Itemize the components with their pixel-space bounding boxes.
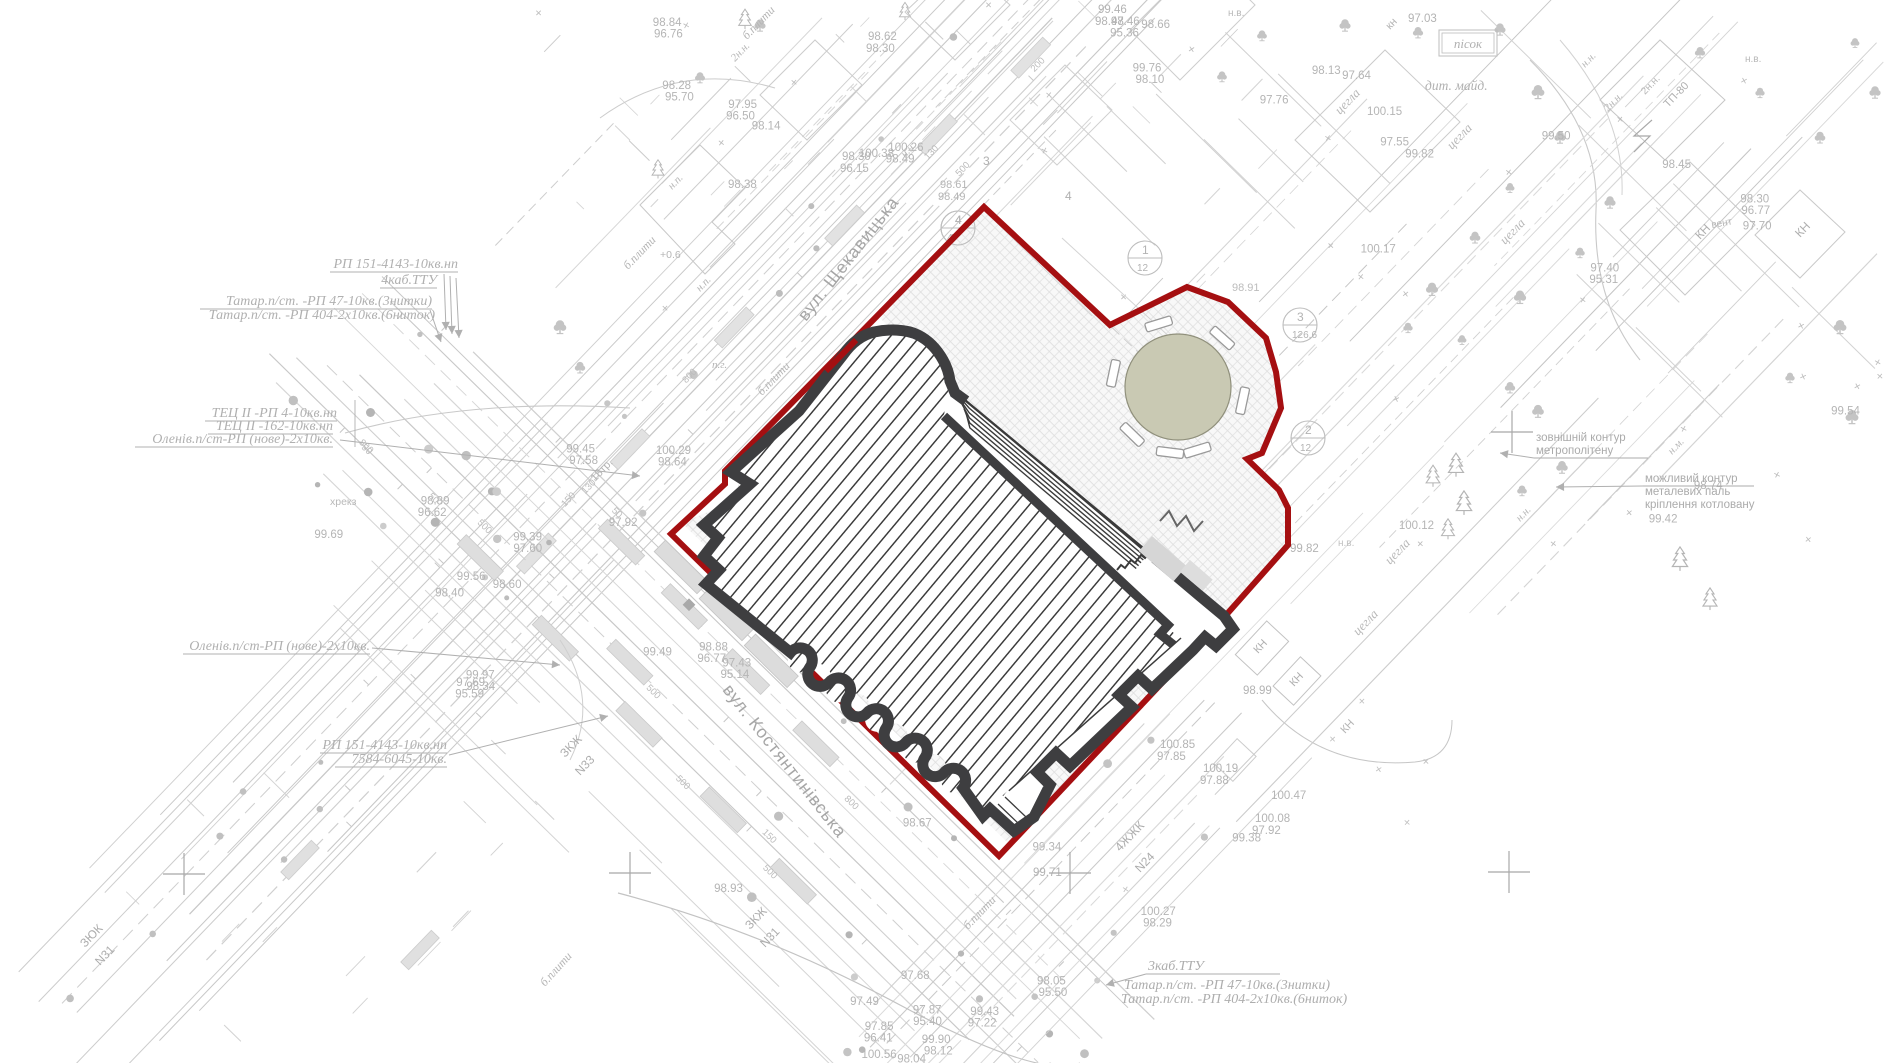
svg-text:98.99: 98.99 [1243, 685, 1272, 697]
svg-text:✕: ✕ [1804, 534, 1812, 545]
svg-text:98.49: 98.49 [938, 191, 966, 203]
svg-text:95.40: 95.40 [913, 1016, 942, 1028]
svg-text:✕: ✕ [1327, 241, 1334, 251]
svg-text:✕: ✕ [1358, 696, 1365, 706]
svg-text:98.64: 98.64 [658, 456, 687, 468]
svg-text:99.56: 99.56 [457, 571, 486, 583]
svg-text:✕: ✕ [1357, 272, 1365, 283]
svg-text:✕: ✕ [1504, 167, 1512, 178]
svg-text:4: 4 [1065, 189, 1072, 203]
svg-text:✕: ✕ [1422, 756, 1429, 766]
svg-text:дит. майд.: дит. майд. [1425, 78, 1488, 93]
svg-text:98.62: 98.62 [868, 31, 897, 43]
svg-text:99.45: 99.45 [566, 444, 595, 456]
svg-text:96.77: 96.77 [1741, 205, 1770, 217]
svg-text:98.91: 98.91 [1232, 282, 1260, 294]
svg-text:4: 4 [955, 213, 962, 227]
svg-text:Татар.п/ст. -РП 404-2х10кв.(6н: Татар.п/ст. -РП 404-2х10кв.(6ниток) [1121, 992, 1348, 1007]
svg-text:100.29: 100.29 [656, 445, 691, 457]
svg-text:97.88: 97.88 [1200, 775, 1229, 787]
svg-text:✕: ✕ [1045, 90, 1053, 101]
svg-text:98.93: 98.93 [714, 883, 743, 895]
svg-text:98.67: 98.67 [903, 818, 932, 830]
svg-text:96.50: 96.50 [726, 111, 755, 123]
svg-text:99.39: 99.39 [513, 531, 542, 543]
svg-text:100.85: 100.85 [1160, 739, 1195, 751]
svg-text:3каб.ТТУ: 3каб.ТТУ [1147, 959, 1205, 974]
svg-text:95.31: 95.31 [1589, 274, 1618, 286]
svg-text:✕: ✕ [535, 8, 542, 18]
svg-text:98.28: 98.28 [662, 80, 691, 92]
svg-text:97.85: 97.85 [865, 1021, 894, 1033]
svg-text:пісок: пісок [1454, 36, 1483, 51]
svg-text:н.в.: н.в. [1338, 538, 1354, 549]
svg-text:95.59: 95.59 [455, 689, 484, 701]
svg-text:Оленів.п/ст-РП (нове)-2х10кв.: Оленів.п/ст-РП (нове)-2х10кв. [189, 639, 370, 654]
svg-text:98.60: 98.60 [493, 579, 522, 591]
svg-text:✕: ✕ [1329, 734, 1336, 744]
svg-text:✕: ✕ [1625, 507, 1633, 518]
svg-text:100.15: 100.15 [1367, 106, 1402, 118]
svg-text:1: 1 [1142, 243, 1149, 257]
svg-text:3: 3 [1297, 310, 1304, 324]
svg-text:✕: ✕ [1876, 371, 1884, 381]
svg-text:97.64: 97.64 [1342, 70, 1371, 82]
svg-text:Татар.п/ст. -РП 47-10кв.(3нитк: Татар.п/ст. -РП 47-10кв.(3нитки) [1124, 978, 1330, 993]
svg-text:99.69: 99.69 [314, 529, 343, 541]
svg-text:99.76: 99.76 [1133, 62, 1162, 74]
svg-text:98.88: 98.88 [699, 641, 728, 653]
svg-text:99.82: 99.82 [1405, 149, 1434, 161]
svg-text:РП 151-4143-10кв.нп: РП 151-4143-10кв.нп [321, 738, 447, 753]
svg-text:98.05: 98.05 [1037, 976, 1066, 988]
svg-text:Татар.п/ст. -РП 404-2х10кв.(6н: Татар.п/ст. -РП 404-2х10кв.(6ниток) [209, 308, 436, 323]
svg-text:✕: ✕ [1401, 289, 1409, 300]
svg-text:100.27: 100.27 [1141, 906, 1176, 918]
svg-text:98.66: 98.66 [1141, 19, 1170, 31]
svg-text:95.36: 95.36 [1110, 28, 1139, 40]
svg-text:100.12: 100.12 [1399, 520, 1434, 532]
svg-text:99.42: 99.42 [1649, 514, 1678, 526]
svg-text:96.41: 96.41 [864, 1033, 893, 1045]
svg-text:✕: ✕ [1417, 539, 1425, 549]
svg-text:98.84: 98.84 [653, 17, 682, 29]
svg-text:12: 12 [1137, 263, 1149, 274]
svg-text:Татар.п/ст. -РП 47-10кв.(3нитк: Татар.п/ст. -РП 47-10кв.(3нитки) [226, 294, 432, 309]
svg-text:97.69: 97.69 [456, 677, 485, 689]
svg-text:96.76: 96.76 [654, 29, 683, 41]
svg-text:99.43: 99.43 [970, 1006, 999, 1018]
svg-text:97.95: 97.95 [728, 99, 757, 111]
svg-text:97.87: 97.87 [913, 1004, 942, 1016]
svg-text:97.68: 97.68 [901, 970, 930, 982]
svg-text:✕: ✕ [717, 138, 725, 149]
svg-text:РП 151-4143-10кв.нп: РП 151-4143-10кв.нп [332, 257, 458, 272]
svg-text:✕: ✕ [1579, 294, 1587, 305]
svg-text:98.40: 98.40 [435, 588, 464, 600]
svg-text:п.г.: п.г. [712, 359, 727, 371]
svg-text:3: 3 [983, 154, 990, 168]
svg-text:97.55: 97.55 [1380, 137, 1409, 149]
svg-text:98.30: 98.30 [866, 43, 895, 55]
svg-text:97.58: 97.58 [569, 455, 598, 467]
svg-text:98.30: 98.30 [1740, 193, 1769, 205]
svg-text:100.08: 100.08 [1255, 813, 1290, 825]
svg-text:95.50: 95.50 [1039, 987, 1068, 999]
svg-text:100.19: 100.19 [1203, 763, 1238, 775]
svg-text:97.92: 97.92 [609, 517, 638, 529]
svg-text:✕: ✕ [790, 77, 798, 87]
svg-text:100.56: 100.56 [862, 1049, 897, 1061]
svg-text:2: 2 [1305, 423, 1312, 437]
svg-text:99.90: 99.90 [922, 1034, 951, 1046]
svg-text:99.49: 99.49 [643, 647, 672, 659]
svg-text:97.03: 97.03 [1408, 13, 1437, 25]
svg-text:н.в.: н.в. [1228, 8, 1244, 19]
svg-text:98.14: 98.14 [752, 121, 781, 133]
svg-text:98.48: 98.48 [1095, 16, 1124, 28]
svg-text:7584-6045-10кв.: 7584-6045-10кв. [352, 752, 447, 767]
svg-text:99.46: 99.46 [1098, 4, 1127, 16]
svg-text:✕: ✕ [985, 0, 992, 10]
svg-text:97.70: 97.70 [1743, 221, 1772, 233]
svg-text:зовнішній контур: зовнішній контур [1536, 432, 1626, 444]
svg-text:✕: ✕ [661, 303, 668, 313]
svg-text:97.92: 97.92 [1252, 825, 1281, 837]
svg-text:97.60: 97.60 [513, 543, 542, 555]
svg-text:99.54: 99.54 [1831, 406, 1860, 418]
svg-text:98.12: 98.12 [924, 1046, 953, 1058]
svg-text:95.70: 95.70 [665, 92, 694, 104]
svg-text:металевих паль: металевих паль [1645, 486, 1730, 498]
svg-text:98.04: 98.04 [897, 1054, 926, 1063]
svg-text:99.34: 99.34 [1033, 841, 1062, 853]
svg-text:100.17: 100.17 [1361, 244, 1396, 256]
svg-text:97.40: 97.40 [1590, 263, 1619, 275]
svg-text:98.29: 98.29 [1143, 918, 1172, 930]
svg-text:97.49: 97.49 [850, 996, 879, 1008]
svg-text:97.43: 97.43 [722, 657, 751, 669]
svg-text:✕: ✕ [1616, 114, 1624, 125]
svg-text:✕: ✕ [1403, 817, 1411, 827]
svg-text:98.13: 98.13 [1312, 65, 1341, 77]
svg-text:хрекз: хрекз [330, 496, 357, 508]
svg-text:97.22: 97.22 [968, 1018, 997, 1030]
svg-text:95.14: 95.14 [721, 669, 750, 681]
svg-text:100.38: 100.38 [859, 148, 894, 160]
svg-text:99.82: 99.82 [1290, 543, 1319, 555]
svg-text:126,6: 126,6 [1292, 330, 1317, 341]
svg-text:98.45: 98.45 [1662, 159, 1691, 171]
svg-text:96.62: 96.62 [418, 507, 447, 519]
svg-text:✕: ✕ [1549, 538, 1557, 549]
svg-text:99.50: 99.50 [1542, 131, 1571, 143]
svg-text:98.10: 98.10 [1136, 74, 1165, 86]
svg-text:н.в.: н.в. [1745, 54, 1761, 65]
svg-text:98.61: 98.61 [940, 179, 968, 191]
svg-text:можливий контур: можливий контур [1645, 473, 1737, 485]
svg-text:метрополітену: метрополітену [1536, 445, 1613, 457]
svg-text:97.76: 97.76 [1260, 94, 1289, 106]
svg-text:100.47: 100.47 [1271, 790, 1306, 802]
svg-text:96.15: 96.15 [840, 163, 869, 175]
svg-text:12: 12 [1300, 443, 1312, 454]
svg-text:кріплення котловану: кріплення котловану [1645, 499, 1755, 511]
svg-text:97.85: 97.85 [1157, 751, 1186, 763]
svg-text:4каб.ТТУ: 4каб.ТТУ [381, 273, 438, 288]
svg-text:+0.6: +0.6 [660, 249, 681, 261]
